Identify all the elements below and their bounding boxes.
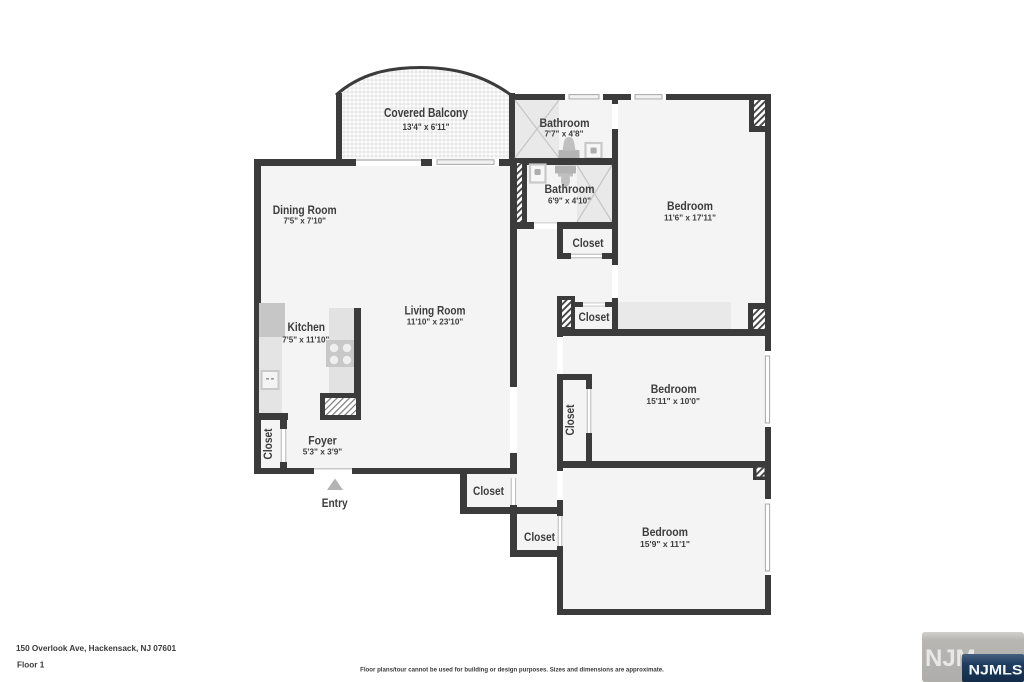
svg-text:Covered Balcony: Covered Balcony [384, 106, 468, 120]
svg-text:13'4" x 6'11": 13'4" x 6'11" [403, 122, 450, 133]
svg-text:Closet: Closet [563, 405, 577, 436]
svg-text:11'6" x 17'11": 11'6" x 17'11" [664, 213, 716, 223]
svg-text:Floor plans/tour cannot be use: Floor plans/tour cannot be used for buil… [360, 667, 664, 674]
svg-text:NJMLS: NJMLS [969, 663, 1023, 678]
svg-text:Bathroom: Bathroom [545, 182, 595, 196]
svg-text:11'10" x 23'10": 11'10" x 23'10" [407, 317, 464, 327]
svg-text:Entry: Entry [322, 496, 348, 510]
svg-text:6'9" x 4'10": 6'9" x 4'10" [548, 196, 591, 206]
svg-text:Kitchen: Kitchen [288, 320, 326, 334]
svg-text:15'11" x 10'0": 15'11" x 10'0" [646, 396, 700, 406]
svg-text:Bedroom: Bedroom [642, 525, 688, 539]
svg-text:7'7" x 4'8": 7'7" x 4'8" [545, 129, 584, 139]
svg-text:150 Overlook Ave, Hackensack,: 150 Overlook Ave, Hackensack, NJ 07601 [16, 644, 177, 653]
svg-text:Closet: Closet [473, 484, 504, 498]
svg-text:15'9" x 11'1": 15'9" x 11'1" [640, 539, 690, 549]
svg-text:7'5" x 11'10": 7'5" x 11'10" [282, 334, 329, 344]
svg-text:Closet: Closet [524, 530, 555, 544]
svg-text:Closet: Closet [261, 429, 275, 460]
svg-text:Floor 1: Floor 1 [17, 661, 45, 670]
svg-text:Closet: Closet [573, 236, 604, 250]
svg-text:Bedroom: Bedroom [651, 382, 697, 396]
svg-text:Bedroom: Bedroom [667, 199, 713, 213]
svg-text:5'3" x 3'9": 5'3" x 3'9" [303, 446, 343, 456]
svg-text:Closet: Closet [579, 310, 610, 324]
svg-text:Living Room: Living Room [405, 304, 466, 318]
svg-text:7'5" x 7'10": 7'5" x 7'10" [283, 216, 326, 226]
